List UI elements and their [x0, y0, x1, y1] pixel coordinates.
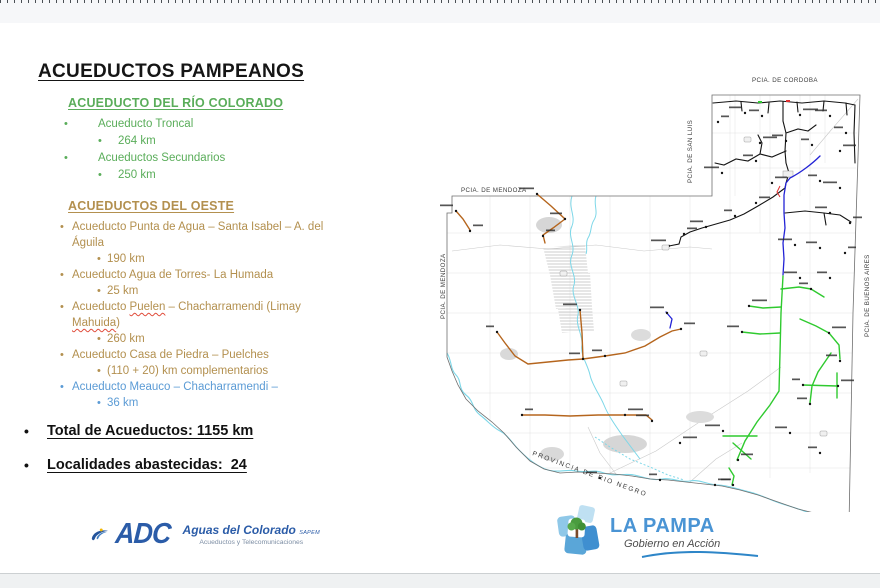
aqueduct-item: Acueducto Casa de Piedra – Puelches — [60, 347, 326, 363]
aqueduct-section: ACUEDUCTOS DEL OESTEAcueducto Punta de A… — [60, 198, 326, 411]
aqueduct-item: Acueductos Secundarios — [60, 150, 326, 167]
town-label-mark — [752, 300, 767, 302]
la-pampa-shield-icon — [556, 504, 602, 558]
aqueduct-item: Acueducto Troncal — [60, 116, 326, 133]
town-label-mark — [683, 437, 697, 439]
aqueduct-item-length: 260 km — [60, 331, 326, 347]
adc-suffix: SAPEM — [299, 530, 320, 536]
town-label-mark — [718, 479, 731, 481]
label-buenos-aires: PCIA. DE BUENOS AIRES — [864, 254, 871, 337]
town-label-mark — [569, 353, 580, 355]
town-label-mark — [799, 283, 808, 285]
town-label-mark — [650, 307, 664, 309]
aqueduct-item: Acueducto Punta de Agua – Santa Isabel –… — [60, 219, 326, 251]
label-cordoba: PCIA. DE CORDOBA — [752, 77, 818, 84]
page-title: ACUEDUCTOS PAMPEANOS — [38, 61, 304, 83]
town-label-mark — [848, 247, 856, 249]
town-label-mark — [649, 474, 657, 476]
town-label-mark — [741, 454, 753, 456]
town-label-mark — [775, 177, 787, 179]
town-label-mark — [826, 355, 837, 357]
map-grid — [447, 95, 857, 493]
alert-mark — [786, 100, 790, 102]
town-label-mark — [473, 225, 483, 227]
town-label-mark — [832, 327, 846, 329]
adc-swoosh-icon — [90, 517, 111, 551]
aqueduct-sections: ACUEDUCTO DEL RÍO COLORADOAcueducto Tron… — [60, 95, 326, 411]
aqueduct-item-length: 190 km — [60, 251, 326, 267]
la-pampa-tagline: Gobierno en Acción — [624, 538, 760, 550]
town-label-mark — [843, 145, 856, 147]
section-heading: ACUEDUCTOS DEL OESTE — [68, 198, 326, 214]
adc-name: Aguas del Colorado — [183, 523, 296, 537]
town-label-mark — [797, 398, 807, 400]
adc-logo: ADC Aguas del Colorado SAPEM Acueductos … — [90, 517, 320, 567]
town-label-mark — [792, 379, 800, 381]
town-label-mark — [705, 425, 720, 427]
aqueduct-green-lines — [723, 276, 840, 485]
town-label-mark — [853, 217, 862, 219]
label-mendoza-side: PCIA. DE MENDOZA — [440, 253, 447, 319]
map-roads — [452, 99, 858, 482]
town-label-mark — [808, 447, 817, 449]
section-heading: ACUEDUCTO DEL RÍO COLORADO — [68, 95, 326, 111]
town-label-mark — [592, 350, 602, 352]
town-label-mark — [815, 207, 827, 209]
town-label-mark — [834, 127, 843, 129]
town-label-mark — [486, 326, 494, 328]
town-label-mark — [729, 107, 742, 109]
aqueduct-item-length: 264 km — [60, 133, 326, 150]
town-label-mark — [704, 167, 719, 169]
la-pampa-name: LA PAMPA — [610, 516, 760, 536]
aqueduct-section: ACUEDUCTO DEL RÍO COLORADOAcueducto Tron… — [60, 95, 326, 184]
town-label-mark — [801, 139, 809, 141]
town-label-mark — [563, 304, 577, 306]
aqueduct-item: Acueducto Puelen – Chacharramendi (Limay… — [60, 299, 326, 331]
total-line: Total de Acueductos: 1155 km — [20, 423, 253, 439]
town-label-mark — [743, 155, 753, 157]
town-label-mark — [651, 240, 666, 242]
aqueduct-item-length: (110 + 20) km complementarios — [60, 363, 326, 379]
town-label-mark — [806, 242, 817, 244]
town-label-mark — [778, 239, 792, 241]
town-label-mark — [772, 135, 783, 137]
label-mendoza-top: PCIA. DE MENDOZA — [461, 187, 527, 194]
town-label-mark — [546, 230, 555, 232]
town-label-mark — [684, 323, 695, 325]
town-label-mark — [687, 228, 697, 230]
map-legend-box — [783, 171, 793, 177]
label-san-luis: PCIA. DE SAN LUIS — [687, 120, 694, 183]
aqueduct-item-length: 36 km — [60, 395, 326, 411]
town-label-mark — [727, 326, 739, 328]
province-outline — [447, 95, 860, 512]
town-label-mark — [636, 415, 649, 417]
adc-tagline: Acueductos y Telecomunicaciones — [183, 539, 320, 546]
misspelled-word: Mahuida — [72, 317, 116, 329]
town-label-mark — [815, 110, 827, 112]
aqueduct-item: Acueducto Agua de Torres- La Humada — [60, 267, 326, 283]
adc-acronym: ADC — [114, 519, 171, 549]
town-label-mark — [775, 427, 787, 429]
salt-flats — [500, 217, 714, 461]
totals-list: Total de Acueductos: 1155 kmLocalidades … — [20, 423, 253, 491]
horizontal-ruler — [0, 0, 880, 24]
aqueduct-item: Acueducto Meauco – Chacharramendi – — [60, 379, 326, 395]
town-label-mark — [808, 175, 817, 177]
town-label-mark — [841, 380, 854, 382]
total-line: Localidades abastecidas: 24 — [20, 457, 253, 473]
town-label-mark — [759, 197, 770, 199]
town-label-mark — [721, 116, 729, 118]
la-pampa-logo: LA PAMPA Gobierno en Acción — [556, 504, 766, 570]
aqueduct-network-existing — [669, 101, 855, 246]
la-pampa-aqueduct-map: PCIA. DE CORDOBA PCIA. DE SAN LUIS PCIA.… — [430, 40, 880, 512]
status-bar — [0, 573, 880, 588]
la-pampa-swoosh — [640, 551, 760, 559]
town-label-mark — [749, 110, 759, 112]
town-label-mark — [690, 221, 703, 223]
ok-mark — [758, 101, 762, 103]
slide-canvas: ACUEDUCTOS PAMPEANOS ACUEDUCTO DEL RÍO C… — [0, 23, 880, 573]
town-label-mark — [823, 182, 837, 184]
town-label-mark — [525, 409, 533, 411]
aqueduct-item-length: 25 km — [60, 283, 326, 299]
town-label-mark — [784, 272, 797, 274]
misspelled-word: Puelen — [130, 301, 166, 313]
town-label-mark — [817, 272, 827, 274]
town-dots — [440, 107, 862, 487]
town-label-mark — [550, 213, 562, 215]
town-label-mark — [763, 137, 777, 139]
town-label-mark — [724, 210, 732, 212]
aqueduct-item-length: 250 km — [60, 167, 326, 184]
town-label-mark — [628, 409, 643, 411]
town-label-mark — [440, 205, 453, 207]
